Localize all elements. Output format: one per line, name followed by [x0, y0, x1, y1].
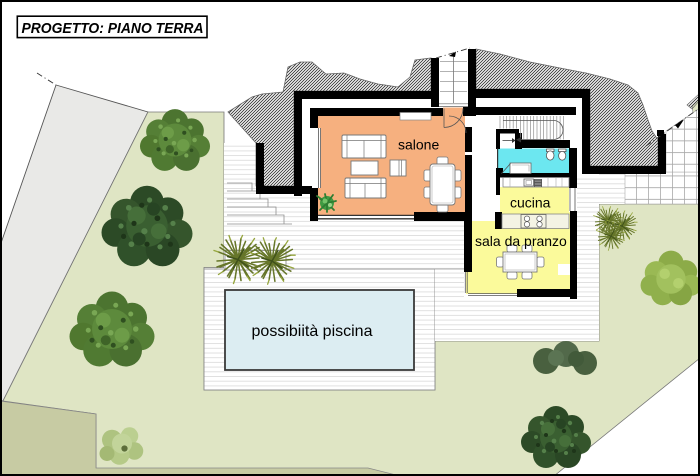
svg-text:sala da pranzo: sala da pranzo [475, 233, 567, 249]
svg-text:salone: salone [398, 137, 439, 153]
svg-text:possibiità piscina: possibiità piscina [252, 323, 373, 340]
svg-text:cucina: cucina [510, 195, 551, 211]
svg-text:PROGETTO: PIANO TERRA: PROGETTO: PIANO TERRA [22, 21, 204, 37]
